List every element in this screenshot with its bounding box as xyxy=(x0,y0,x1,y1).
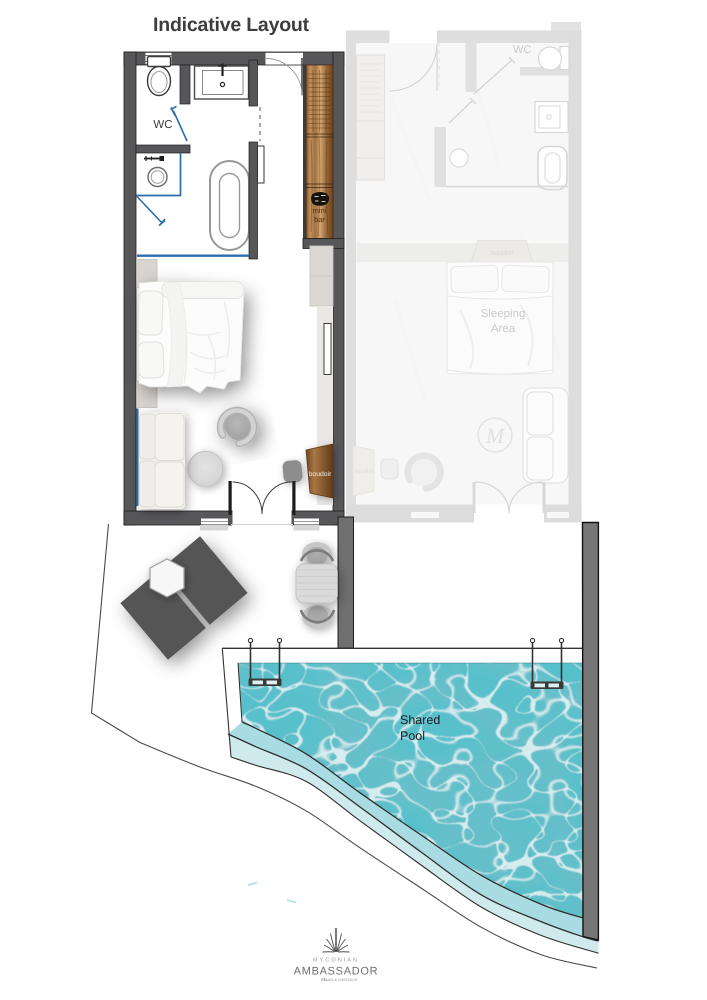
svg-text:WC: WC xyxy=(153,119,172,131)
svg-text:bar: bar xyxy=(314,215,325,224)
svg-text:WC: WC xyxy=(513,44,531,56)
svg-text:Sleeping: Sleeping xyxy=(481,308,526,320)
svg-text:Shared: Shared xyxy=(400,713,440,727)
svg-text:boudoir: boudoir xyxy=(309,471,332,478)
svg-text:boudoir: boudoir xyxy=(355,468,375,475)
svg-text:Pool: Pool xyxy=(400,729,425,743)
svg-text:mini: mini xyxy=(313,206,327,215)
svg-text:M: M xyxy=(485,423,506,448)
svg-text:MYCONIAN: MYCONIAN xyxy=(313,958,359,964)
svg-text:Indicative Layout: Indicative Layout xyxy=(153,14,310,36)
svg-text:AMBASSADOR: AMBASSADOR xyxy=(294,966,379,978)
svg-text:Area: Area xyxy=(491,323,516,335)
svg-text:boudoir: boudoir xyxy=(490,249,514,257)
